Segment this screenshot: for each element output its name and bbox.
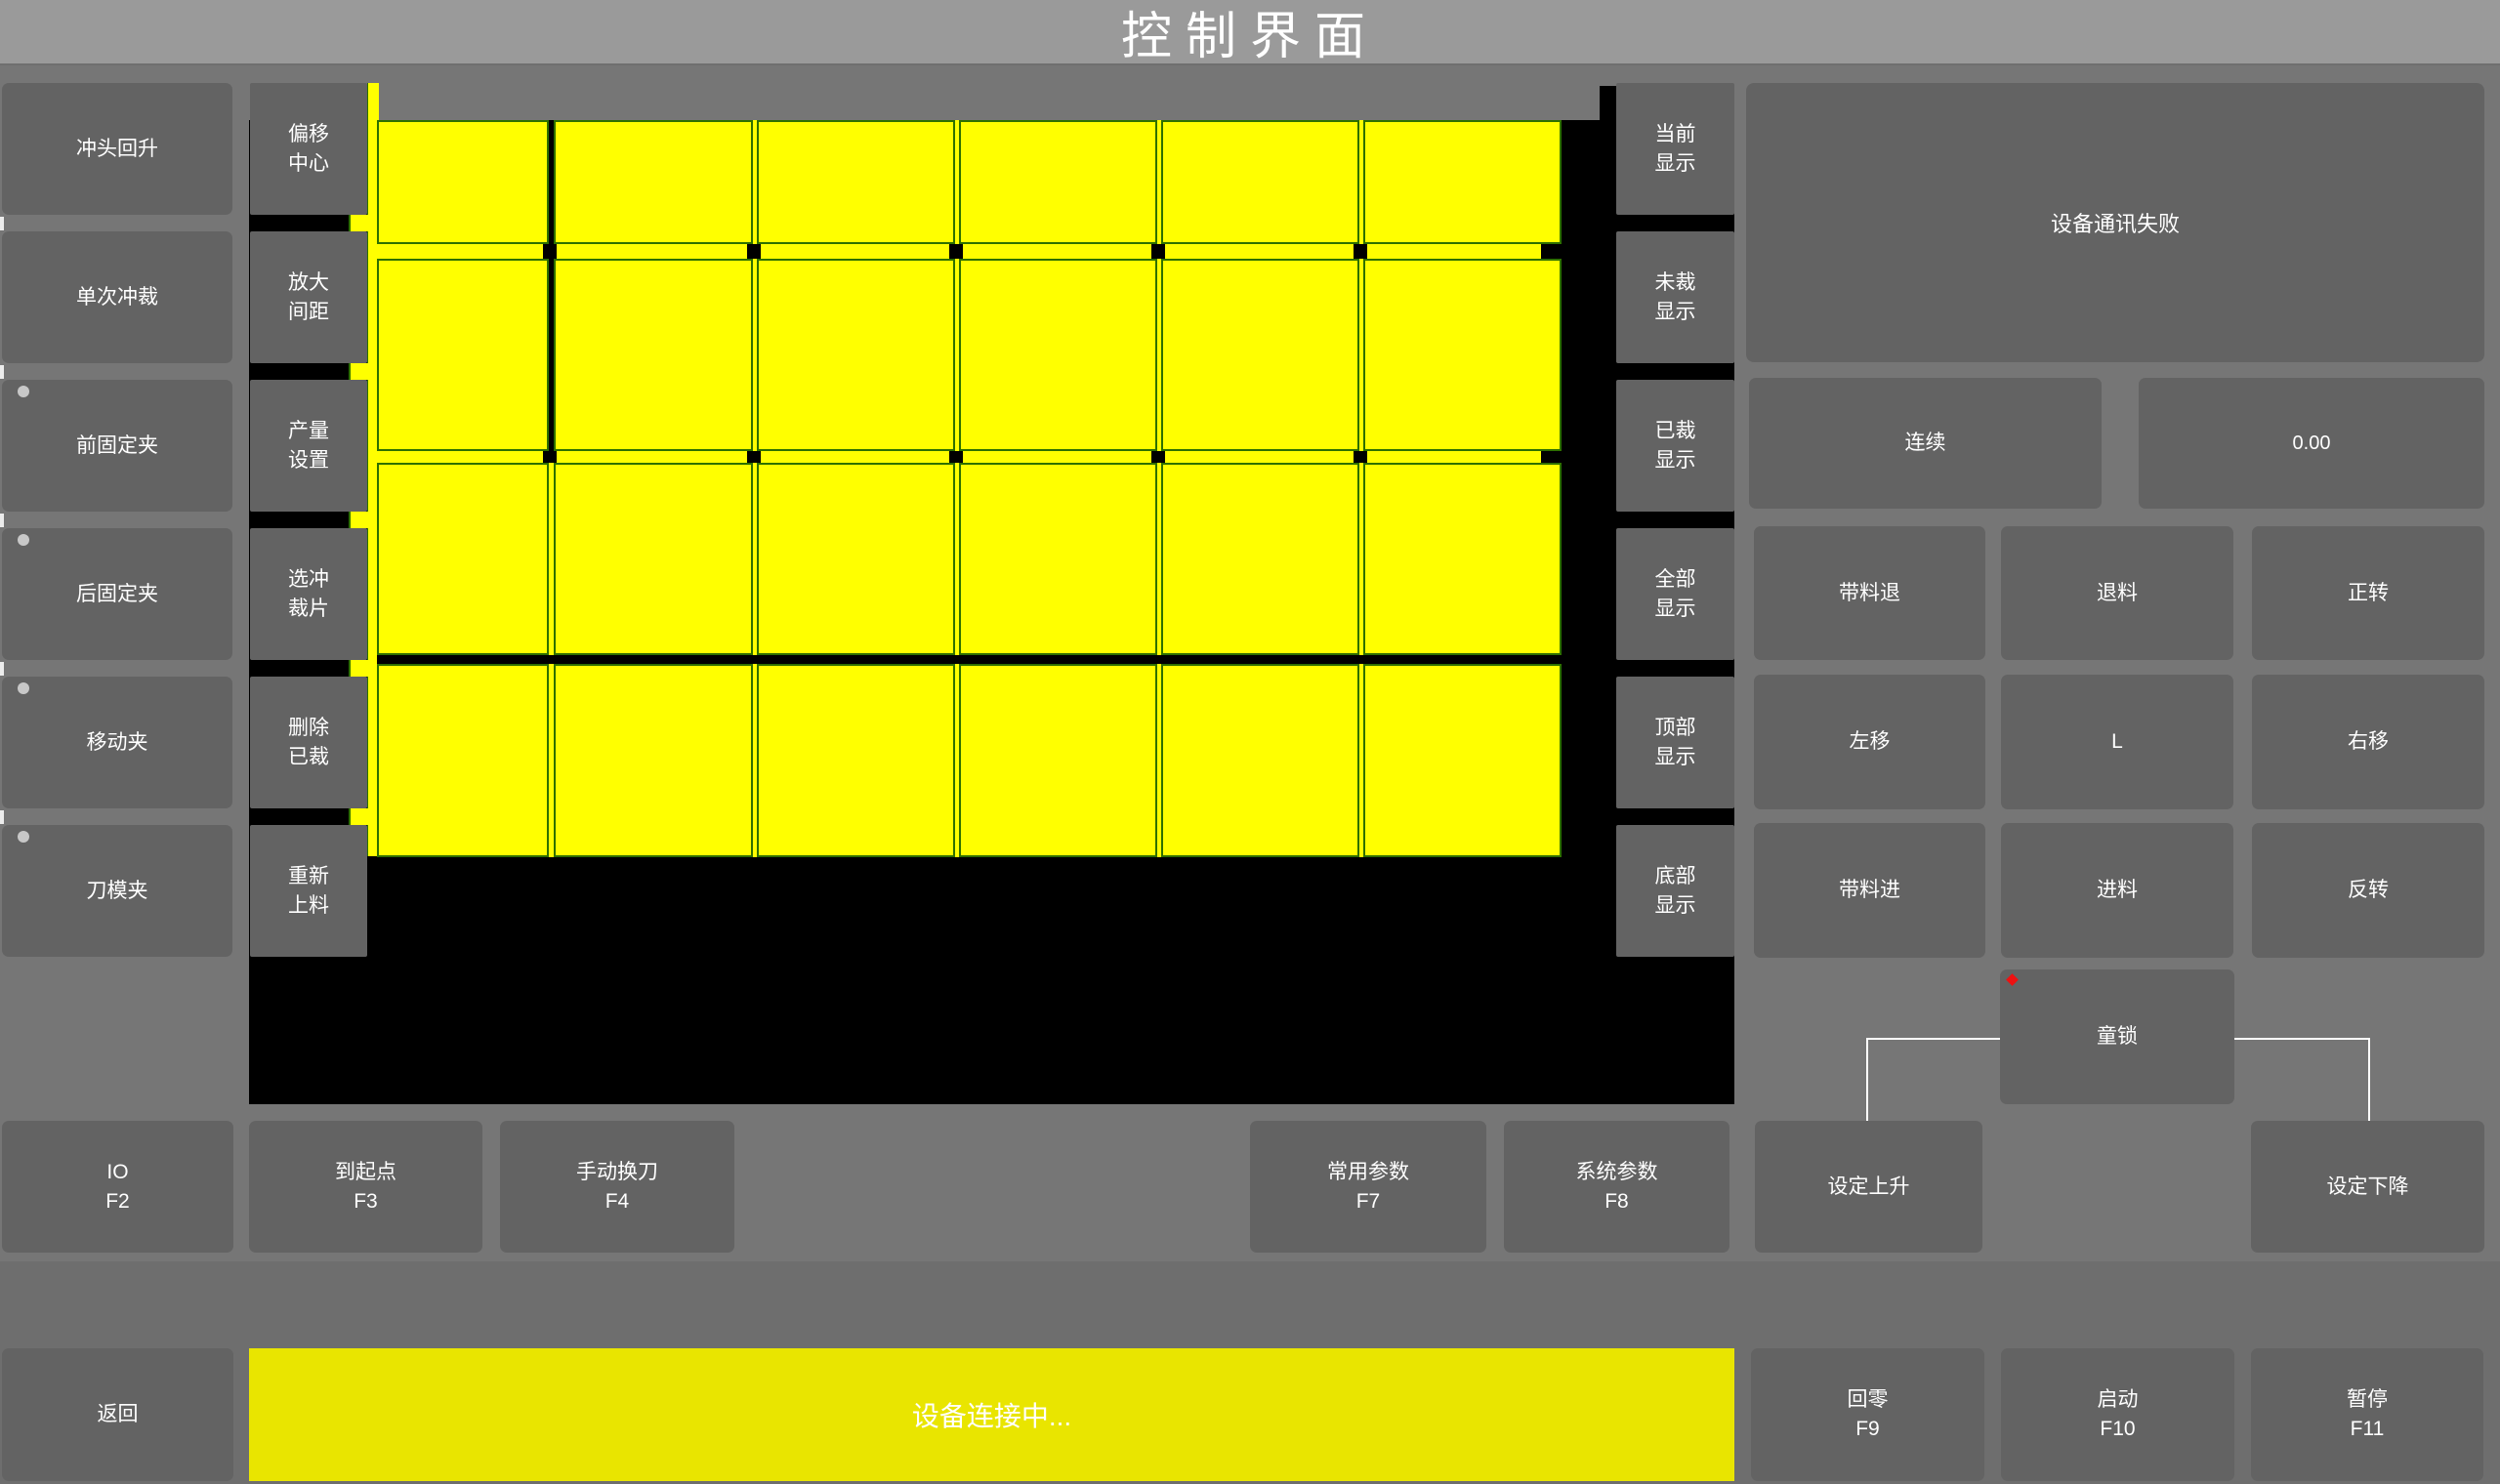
- nest-piece[interactable]: [377, 120, 549, 244]
- nest-piece[interactable]: [1161, 259, 1359, 451]
- button-label: 移动夹: [87, 728, 148, 758]
- alarm-dot-icon: [2006, 973, 2019, 986]
- nest-piece[interactable]: [757, 120, 955, 244]
- button-label: 未裁: [1655, 268, 1696, 298]
- button-label: 显示: [1655, 595, 1696, 624]
- indicator-dot: [18, 682, 29, 694]
- button-label: 显示: [1655, 891, 1696, 921]
- button-label: 显示: [1655, 743, 1696, 772]
- button-front-clamp[interactable]: 前固定夹: [2, 380, 232, 512]
- comm-status-panel: 设备通讯失败: [1746, 83, 2484, 362]
- indicator-dot: [18, 386, 29, 397]
- button-fkey: F7: [1356, 1187, 1381, 1216]
- button-label: 回零: [1848, 1385, 1889, 1415]
- button-label: 到起点: [335, 1158, 396, 1187]
- button-show-cut[interactable]: 已裁 显示: [1616, 380, 1734, 512]
- edge-notch: [0, 662, 4, 676]
- button-back[interactable]: 返回: [2, 1348, 233, 1481]
- button-pause-f11[interactable]: 暂停 F11: [2251, 1348, 2483, 1481]
- sheet-cut-mark: [747, 244, 761, 259]
- comm-fail-message: 设备通讯失败: [2051, 207, 2180, 238]
- button-label: 设定上升: [1828, 1173, 1910, 1202]
- canvas-top-notch: [1600, 86, 1616, 120]
- button-label: 返回: [98, 1400, 139, 1429]
- nest-piece[interactable]: [1363, 463, 1562, 655]
- edge-notch: [0, 810, 4, 824]
- nest-piece[interactable]: [1363, 259, 1562, 451]
- edge-notch: [0, 365, 4, 379]
- button-rear-clamp[interactable]: 后固定夹: [2, 528, 232, 660]
- indicator-dot: [18, 831, 29, 843]
- button-retract-with-material[interactable]: 带料退: [1754, 526, 1985, 660]
- button-die-clamp[interactable]: 刀模夹: [2, 825, 232, 957]
- button-set-fall[interactable]: 设定下降: [2251, 1121, 2484, 1253]
- connection-status-bar: 设备连接中...: [249, 1348, 1734, 1481]
- button-feed-material[interactable]: 进料: [2001, 823, 2233, 958]
- value-text: 0.00: [2293, 429, 2331, 458]
- button-move-left[interactable]: 左移: [1754, 675, 1985, 809]
- wire-line: [1866, 1038, 1868, 1121]
- sheet-cut-mark: [949, 244, 963, 259]
- connection-status-text: 设备连接中...: [912, 1395, 1071, 1434]
- indicator-dot: [18, 534, 29, 546]
- button-start-f10[interactable]: 启动 F10: [2001, 1348, 2234, 1481]
- button-offset-center[interactable]: 偏移 中心: [250, 83, 367, 215]
- button-label: 系统参数: [1576, 1158, 1658, 1187]
- button-label: 产量: [288, 417, 329, 446]
- button-label: 启动: [2098, 1385, 2139, 1415]
- button-label: 暂停: [2347, 1385, 2388, 1415]
- button-label: 退料: [2097, 579, 2138, 608]
- button-child-lock[interactable]: 童锁: [2000, 969, 2234, 1104]
- button-label: 反转: [2348, 876, 2389, 905]
- sheet-cut-line: [549, 120, 554, 461]
- button-move-right[interactable]: 右移: [2252, 675, 2484, 809]
- button-io-f2[interactable]: IO F2: [2, 1121, 233, 1253]
- button-show-top[interactable]: 顶部 显示: [1616, 677, 1734, 808]
- button-label: 右移: [2348, 727, 2389, 757]
- button-set-rise[interactable]: 设定上升: [1755, 1121, 1982, 1253]
- button-fkey: F11: [2351, 1415, 2385, 1444]
- button-system-params-f8[interactable]: 系统参数 F8: [1504, 1121, 1729, 1253]
- page-title: 控制界面: [1121, 0, 1379, 68]
- button-label: 连续: [1905, 429, 1946, 458]
- button-return-zero-f9[interactable]: 回零 F9: [1751, 1348, 1984, 1481]
- nesting-sheet: [377, 120, 1562, 857]
- button-fkey: F4: [605, 1187, 630, 1216]
- button-label: 选冲: [288, 565, 329, 595]
- button-label: 进料: [2097, 876, 2138, 905]
- button-l[interactable]: L: [2001, 675, 2233, 809]
- button-select-piece[interactable]: 选冲 裁片: [250, 528, 367, 660]
- button-go-to-origin-f3[interactable]: 到起点 F3: [249, 1121, 482, 1253]
- button-label: 后固定夹: [76, 580, 158, 609]
- nest-piece[interactable]: [757, 259, 955, 451]
- button-label: 已裁: [1655, 417, 1696, 446]
- button-label: 刀模夹: [87, 877, 148, 906]
- button-label: 全部: [1655, 565, 1696, 595]
- button-label: 设定下降: [2327, 1173, 2409, 1202]
- button-label: 重新: [288, 862, 329, 891]
- sheet-cut-mark: [1541, 451, 1562, 463]
- sheet-cut-mark: [1151, 451, 1165, 463]
- nest-piece[interactable]: [1363, 120, 1562, 244]
- button-single-punch[interactable]: 单次冲裁: [2, 231, 232, 363]
- button-label: 间距: [288, 298, 329, 327]
- sheet-cut-mark: [1354, 244, 1367, 259]
- button-fkey: F8: [1604, 1187, 1629, 1216]
- button-label: 放大: [288, 268, 329, 298]
- button-label: 裁片: [288, 595, 329, 624]
- nest-piece[interactable]: [377, 664, 549, 857]
- button-label: 已裁: [288, 743, 329, 772]
- button-label: 常用参数: [1327, 1158, 1409, 1187]
- nest-piece[interactable]: [1161, 120, 1359, 244]
- wire-line: [2368, 1038, 2370, 1121]
- button-yield-settings[interactable]: 产量 设置: [250, 380, 367, 512]
- button-fkey: F3: [354, 1187, 378, 1216]
- button-label: 显示: [1655, 149, 1696, 179]
- button-rotate-reverse[interactable]: 反转: [2252, 823, 2484, 958]
- nest-piece[interactable]: [959, 259, 1157, 451]
- button-label: 带料退: [1839, 579, 1900, 608]
- button-retract-material[interactable]: 退料: [2001, 526, 2233, 660]
- button-delete-cut[interactable]: 删除 已裁: [250, 677, 367, 808]
- button-label: 手动换刀: [576, 1158, 658, 1187]
- button-common-params-f7[interactable]: 常用参数 F7: [1250, 1121, 1486, 1253]
- wire-line: [1866, 1038, 2000, 1040]
- button-label: 中心: [288, 149, 329, 179]
- button-label: 顶部: [1655, 714, 1696, 743]
- sheet-notch: [349, 512, 369, 528]
- sheet-cut-mark: [1151, 244, 1165, 259]
- button-label: 偏移: [288, 120, 329, 149]
- button-label: 童锁: [2097, 1022, 2138, 1051]
- sheet-cut-mark: [949, 451, 963, 463]
- sheet-cut-mark: [747, 451, 761, 463]
- button-show-bottom[interactable]: 底部 显示: [1616, 825, 1734, 957]
- nest-piece[interactable]: [959, 664, 1157, 857]
- button-label: 正转: [2348, 579, 2389, 608]
- button-fkey: F2: [105, 1187, 130, 1216]
- sheet-cut-line: [377, 655, 1562, 664]
- nest-piece[interactable]: [1161, 664, 1359, 857]
- button-punch-raise[interactable]: 冲头回升: [2, 83, 232, 215]
- nest-piece[interactable]: [959, 463, 1157, 655]
- button-label: 当前: [1655, 120, 1696, 149]
- button-label: 带料进: [1839, 876, 1900, 905]
- button-label: 左移: [1850, 727, 1891, 757]
- button-rotate-forward[interactable]: 正转: [2252, 526, 2484, 660]
- nest-piece[interactable]: [757, 664, 955, 857]
- sheet-notch: [349, 215, 369, 231]
- button-label: 前固定夹: [76, 432, 158, 461]
- button-label: 设置: [288, 446, 329, 475]
- sheet-notch: [349, 660, 369, 677]
- nest-piece[interactable]: [1161, 463, 1359, 655]
- button-label: 上料: [288, 891, 329, 921]
- nest-piece[interactable]: [1363, 664, 1562, 857]
- button-fkey: F10: [2100, 1415, 2135, 1444]
- wire-line: [2234, 1038, 2370, 1040]
- button-label: 底部: [1655, 862, 1696, 891]
- button-moving-clamp[interactable]: 移动夹: [2, 677, 232, 808]
- button-label: IO: [106, 1158, 128, 1187]
- button-fkey: F9: [1855, 1415, 1880, 1444]
- value-display: 0.00: [2139, 378, 2484, 509]
- edge-notch: [0, 217, 4, 230]
- nest-piece[interactable]: [554, 120, 753, 244]
- button-show-all[interactable]: 全部 显示: [1616, 528, 1734, 660]
- button-label: 删除: [288, 714, 329, 743]
- edge-notch: [0, 514, 4, 527]
- nest-piece[interactable]: [554, 259, 753, 451]
- button-reload-material[interactable]: 重新 上料: [250, 825, 367, 957]
- button-show-uncut[interactable]: 未裁 显示: [1616, 231, 1734, 363]
- nest-piece[interactable]: [377, 463, 549, 655]
- sheet-cut-mark: [1354, 451, 1367, 463]
- nest-piece[interactable]: [757, 463, 955, 655]
- sheet-cut-mark: [1541, 244, 1562, 259]
- button-feed-with-material[interactable]: 带料进: [1754, 823, 1985, 958]
- nest-piece[interactable]: [377, 259, 549, 451]
- button-enlarge-spacing[interactable]: 放大 间距: [250, 231, 367, 363]
- button-label: 显示: [1655, 298, 1696, 327]
- sheet-notch: [349, 363, 369, 380]
- button-manual-tool-change-f4[interactable]: 手动换刀 F4: [500, 1121, 734, 1253]
- title-bar: 控制界面: [0, 0, 2500, 65]
- button-label: 冲头回升: [76, 135, 158, 164]
- button-label: 显示: [1655, 446, 1696, 475]
- button-label: 单次冲裁: [76, 283, 158, 312]
- nest-piece[interactable]: [554, 463, 753, 655]
- button-label: L: [2111, 727, 2123, 757]
- button-show-current[interactable]: 当前 显示: [1616, 83, 1734, 215]
- sheet-notch: [349, 808, 369, 825]
- nest-piece[interactable]: [959, 120, 1157, 244]
- button-continuous-mode[interactable]: 连续: [1749, 378, 2102, 509]
- nest-piece[interactable]: [554, 664, 753, 857]
